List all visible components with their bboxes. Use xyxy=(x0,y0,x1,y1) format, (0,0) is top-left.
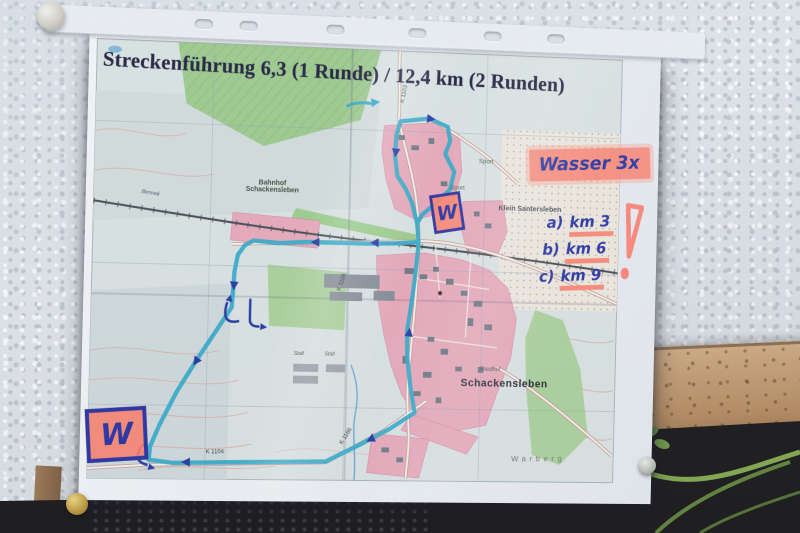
pushpin-top-left xyxy=(37,2,65,30)
label-station: Bahnhof Schackensleben xyxy=(233,179,311,196)
water-point-c: c) km 9 xyxy=(539,265,605,285)
water-point-a-km: km 3 xyxy=(568,212,613,237)
label-sport-north: Sport xyxy=(479,159,494,166)
label-stall-2: Stall xyxy=(324,352,334,358)
water-point-b-km: km 6 xyxy=(565,239,610,264)
pushpin-bottom-right xyxy=(639,457,656,474)
label-road-k1104: K 1104 xyxy=(206,449,224,455)
label-stall-1: Stall xyxy=(293,352,303,358)
w-marker-north: W xyxy=(429,191,465,234)
water-point-b-letter: b) xyxy=(542,240,560,259)
punch-hole xyxy=(408,28,426,39)
label-cemetery: Friedhof xyxy=(480,367,501,373)
punch-hole xyxy=(194,19,213,30)
water-point-a: a) km 3 xyxy=(546,212,613,232)
plastic-sleeve: Streckenführung 6,3 (1 Runde) / 12,4 km … xyxy=(78,30,661,504)
lace-curtain-hint xyxy=(90,498,430,533)
punch-hole xyxy=(326,24,344,35)
water-point-b: b) km 6 xyxy=(542,239,609,259)
route-map-photo: Streckenführung 6,3 (1 Runde) / 12,4 km … xyxy=(0,0,800,533)
note-wasser-3x: Wasser 3x xyxy=(529,147,651,181)
label-town: Schackensleben xyxy=(460,378,547,391)
water-point-a-letter: a) xyxy=(546,213,563,232)
water-point-c-km: km 9 xyxy=(559,265,604,290)
label-station-line2: Schackensleben xyxy=(246,186,299,195)
water-point-c-letter: c) xyxy=(539,267,555,286)
punch-hole xyxy=(484,31,502,41)
pushpin-bottom-left xyxy=(66,493,88,515)
w-marker-southwest: W xyxy=(85,406,149,463)
punch-hole xyxy=(239,21,258,32)
punch-hole xyxy=(547,34,565,44)
label-hill: Warberg xyxy=(511,455,565,464)
exclamation-mark xyxy=(615,202,648,287)
